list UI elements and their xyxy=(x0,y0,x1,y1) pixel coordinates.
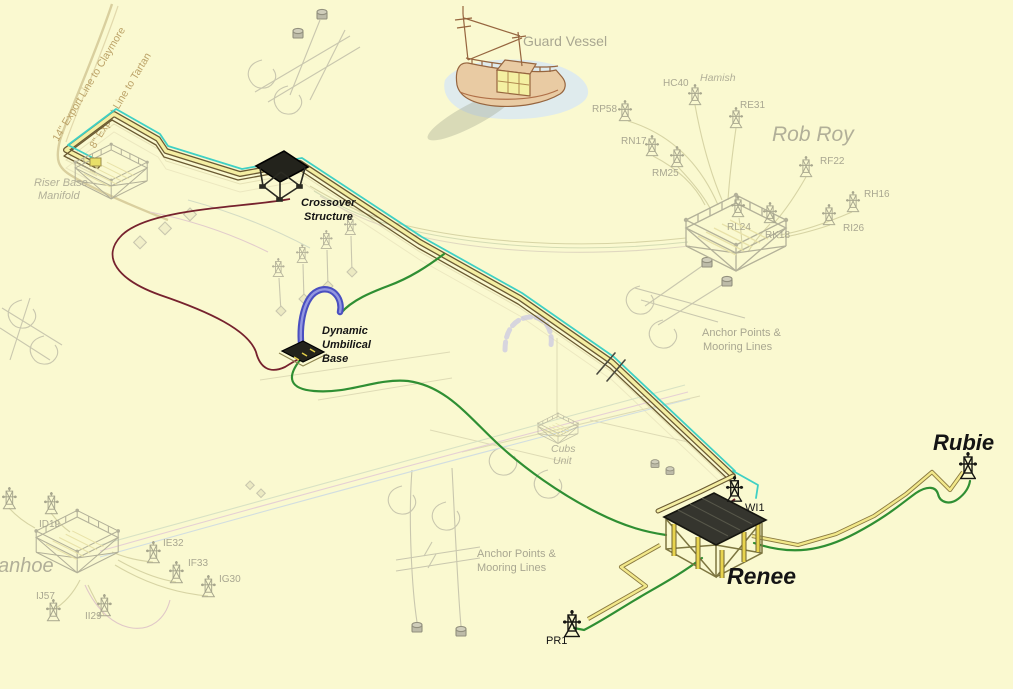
yellow-line-renee-to-rubie xyxy=(752,472,963,545)
anchor-group-right: Anchor Points & Mooring Lines xyxy=(626,257,781,353)
well-label-rn17: RN17 xyxy=(621,136,647,147)
cubs-unit-label-1: Cubs xyxy=(551,443,576,455)
well-label-ig30: IG30 xyxy=(219,574,241,585)
well-label-re31: RE31 xyxy=(740,100,765,111)
guard-vessel-label: Guard Vessel xyxy=(523,33,607,49)
crossover-structure-label-1: Crossover xyxy=(301,197,356,209)
green-line-arch-northeast xyxy=(341,254,444,313)
well-label-rh16: RH16 xyxy=(864,189,890,200)
well-label-hamish: Hamish xyxy=(700,72,736,84)
well-label-ii29: II29 xyxy=(85,611,102,622)
well-label-pr1: PR1 xyxy=(546,635,567,647)
well-label-rp58: RP58 xyxy=(592,104,617,115)
well-label-rf22: RF22 xyxy=(820,156,845,167)
field-layout-diagram: 14" Export Line to Claymore 8" Export Li… xyxy=(0,0,1013,689)
well-label-wi1: WI1 xyxy=(745,502,765,514)
rob-roy-label: Rob Roy xyxy=(772,123,855,146)
cubs-unit-label-2: Unit xyxy=(553,455,573,467)
anchor-group-top xyxy=(248,9,360,114)
pr1-tree xyxy=(563,610,581,637)
well-label-ri26: RI26 xyxy=(843,223,865,234)
well-label-ij57: IJ57 xyxy=(36,591,55,602)
anchor-group-left xyxy=(0,298,62,364)
riser-base-manifold-label-1: Riser Base xyxy=(34,177,88,189)
anchor-points-label-bottom-2: Mooring Lines xyxy=(477,562,547,574)
well-label-rm25: RM25 xyxy=(652,168,679,179)
ivanhoe-label: anhoe xyxy=(0,555,54,577)
well-label-if33: IF33 xyxy=(188,558,208,569)
green-line-renee-to-rubie xyxy=(754,481,970,550)
riser-base-manifold: Riser Base Manifold xyxy=(34,143,149,202)
cubs-structure xyxy=(537,412,579,443)
rubie-label: Rubie xyxy=(933,430,994,455)
riser-base-manifold-label-2: Manifold xyxy=(38,190,80,202)
rob-roy-cluster: RP58 HC40 Hamish RE31 RN17 RM25 RF22 RH1… xyxy=(310,72,890,271)
well-label-rk18: RK18 xyxy=(765,230,790,241)
well-label-rl24: RL24 xyxy=(727,222,751,233)
dub-label-1: Dynamic xyxy=(322,325,368,337)
vessel-hull xyxy=(455,6,565,106)
ghost-boundary-lines xyxy=(66,124,733,494)
anchor-group-bottom: Anchor Points & Mooring Lines xyxy=(388,468,556,636)
dub-label-3: Base xyxy=(322,353,348,365)
guard-vessel: Guard Vessel xyxy=(423,6,607,148)
yellow-flowlines xyxy=(588,472,963,619)
well-label-ie32: IE32 xyxy=(163,538,184,549)
renee-label: Renee xyxy=(727,563,796,589)
anchor-points-label-right-1: Anchor Points & xyxy=(702,327,782,339)
riser-manifold-module xyxy=(90,158,101,166)
dub-label-2: Umbilical xyxy=(322,339,372,351)
crossover-structure-label-2: Structure xyxy=(304,211,353,223)
anchor-points-label-bottom-1: Anchor Points & xyxy=(477,548,557,560)
green-line-renee-to-pr1 xyxy=(574,558,702,630)
diagram-canvas: 14" Export Line to Claymore 8" Export Li… xyxy=(0,0,1013,689)
well-label-hc40: HC40 xyxy=(663,78,689,89)
dynamic-umbilical-base: Dynamic Umbilical Base xyxy=(279,289,372,366)
well-label-id19: ID19 xyxy=(39,519,61,530)
cubs-unit: Cubs Unit xyxy=(537,412,579,467)
anchor-points-label-right-2: Mooring Lines xyxy=(703,341,773,353)
